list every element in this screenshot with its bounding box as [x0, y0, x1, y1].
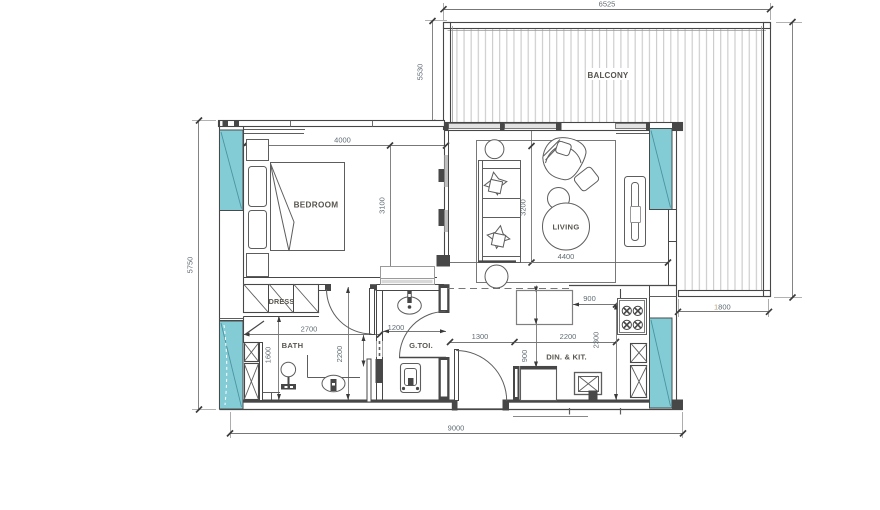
- svg-text:1600: 1600: [264, 347, 273, 364]
- svg-text:1200: 1200: [388, 323, 405, 332]
- svg-text:2300: 2300: [592, 332, 601, 349]
- svg-text:BATH: BATH: [282, 341, 304, 350]
- svg-text:9000: 9000: [448, 423, 465, 432]
- svg-text:5750: 5750: [186, 257, 195, 274]
- svg-text:6525: 6525: [599, 0, 616, 9]
- svg-text:5530: 5530: [416, 64, 425, 81]
- svg-text:BEDROOM: BEDROOM: [294, 201, 339, 210]
- svg-text:G.TOI.: G.TOI.: [409, 341, 433, 350]
- svg-text:2200: 2200: [335, 346, 344, 363]
- svg-text:LIVING: LIVING: [552, 223, 579, 232]
- svg-text:1800: 1800: [714, 303, 731, 312]
- svg-text:900: 900: [583, 294, 596, 303]
- svg-text:4400: 4400: [558, 252, 575, 261]
- svg-text:BALCONY: BALCONY: [588, 71, 629, 80]
- svg-text:2700: 2700: [301, 325, 318, 334]
- svg-text:3100: 3100: [378, 197, 387, 214]
- svg-text:900: 900: [520, 350, 529, 363]
- svg-text:1300: 1300: [472, 332, 489, 341]
- svg-text:2200: 2200: [560, 332, 577, 341]
- svg-text:4000: 4000: [334, 136, 351, 145]
- svg-text:DIN. & KIT.: DIN. & KIT.: [546, 353, 587, 362]
- svg-text:DRESS: DRESS: [269, 297, 295, 306]
